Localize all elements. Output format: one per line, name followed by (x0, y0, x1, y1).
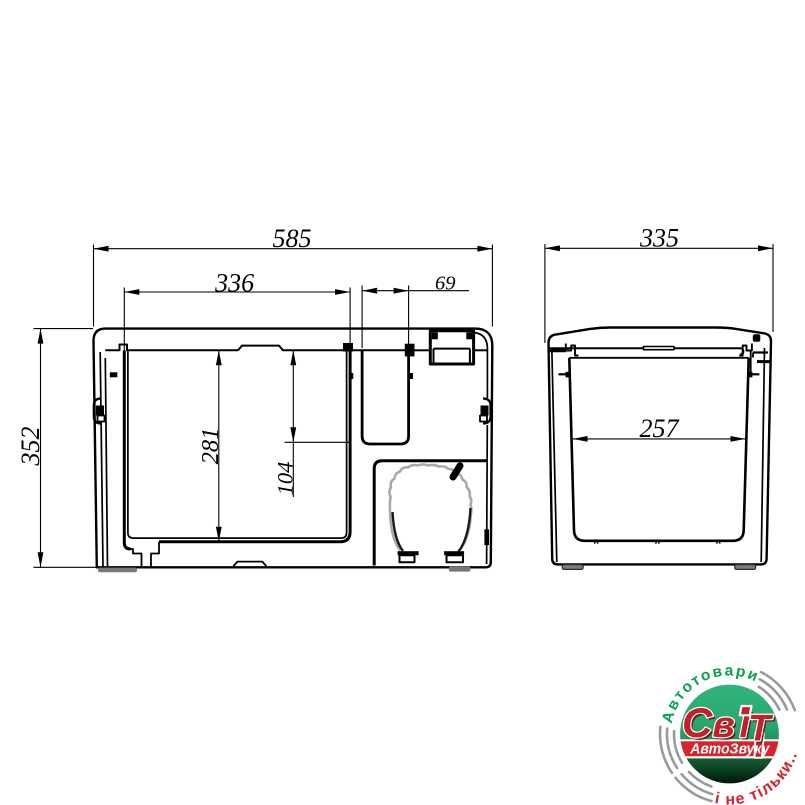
svg-text:69: 69 (435, 273, 456, 295)
svg-text:в: в (713, 704, 735, 745)
svg-text:352: 352 (16, 427, 45, 467)
svg-text:АвтоЗвуку: АвтоЗвуку (689, 741, 770, 758)
svg-text:281: 281 (197, 428, 224, 465)
svg-text:585: 585 (273, 224, 312, 253)
svg-text:335: 335 (639, 224, 679, 253)
svg-text:С: С (682, 699, 713, 746)
svg-text:336: 336 (214, 268, 254, 297)
svg-text:104: 104 (272, 462, 297, 496)
svg-text:257: 257 (640, 414, 680, 443)
